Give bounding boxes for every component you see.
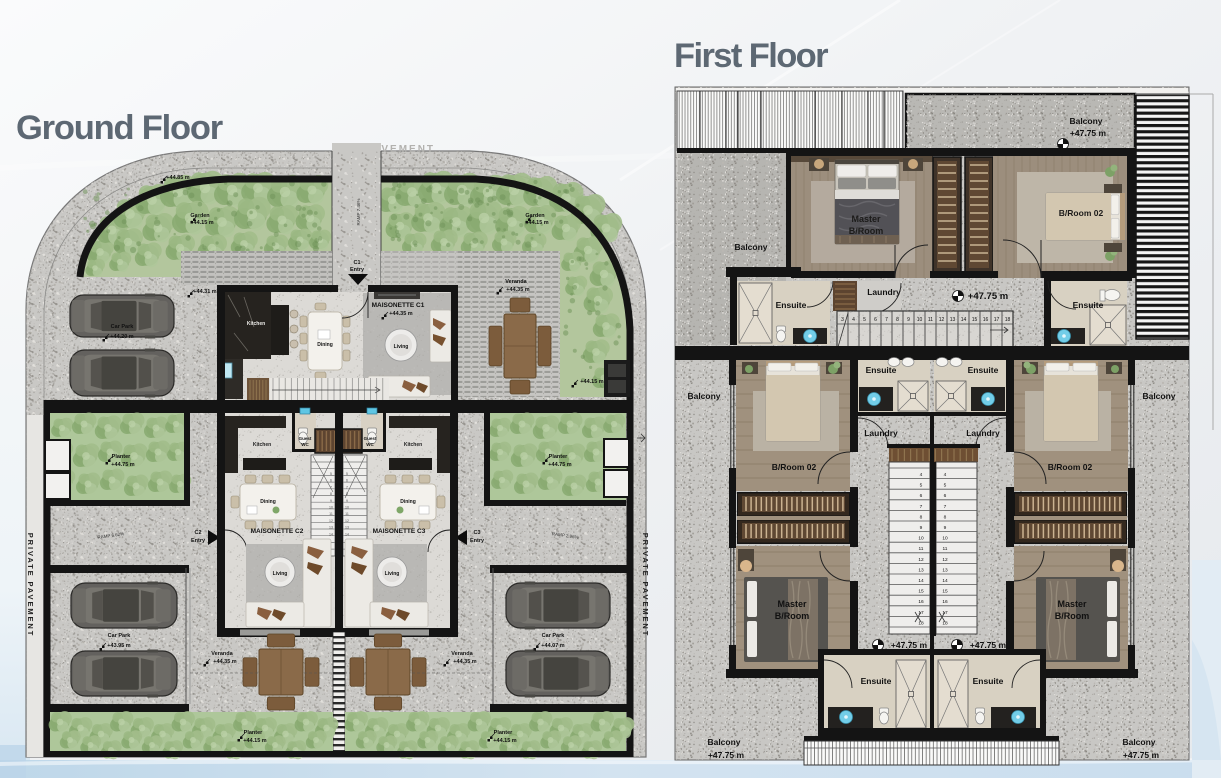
svg-text:12: 12 bbox=[939, 317, 945, 323]
svg-text:9: 9 bbox=[330, 499, 332, 503]
svg-text:16: 16 bbox=[983, 317, 989, 323]
svg-text:10: 10 bbox=[917, 317, 923, 323]
svg-text:7: 7 bbox=[346, 485, 348, 489]
svg-text:C2: C2 bbox=[194, 530, 201, 536]
svg-text:Veranda: Veranda bbox=[451, 651, 473, 657]
svg-text:12: 12 bbox=[918, 557, 924, 563]
svg-text:6: 6 bbox=[920, 493, 923, 499]
svg-text:Balcony: Balcony bbox=[1142, 391, 1175, 401]
svg-text:+44.15 m: +44.15 m bbox=[525, 220, 549, 226]
svg-text:7: 7 bbox=[944, 504, 947, 510]
svg-text:12: 12 bbox=[329, 519, 333, 523]
svg-text:Garden: Garden bbox=[525, 213, 545, 219]
svg-text:Kitchen: Kitchen bbox=[253, 442, 271, 448]
svg-text:6: 6 bbox=[346, 479, 348, 483]
svg-text:15: 15 bbox=[918, 589, 924, 595]
svg-text:14: 14 bbox=[961, 317, 967, 323]
svg-text:Entry: Entry bbox=[191, 538, 206, 544]
svg-text:B/Room 02: B/Room 02 bbox=[772, 462, 817, 472]
svg-text:Balcony: Balcony bbox=[1069, 116, 1102, 126]
svg-text:MAISONETTE C1: MAISONETTE C1 bbox=[372, 302, 425, 309]
svg-text:8: 8 bbox=[944, 514, 947, 520]
svg-text:+47.75 m: +47.75 m bbox=[968, 291, 1008, 302]
svg-text:Laundry: Laundry bbox=[966, 428, 1000, 438]
svg-text:Planter: Planter bbox=[494, 730, 514, 736]
svg-text:9: 9 bbox=[907, 317, 910, 323]
svg-text:+43.95 m: +43.95 m bbox=[107, 643, 131, 649]
svg-text:Dining: Dining bbox=[400, 499, 416, 505]
svg-text:Master: Master bbox=[1057, 599, 1087, 609]
svg-text:WC: WC bbox=[301, 442, 309, 447]
svg-text:4: 4 bbox=[920, 472, 923, 478]
svg-text:C3: C3 bbox=[473, 530, 480, 536]
svg-text:5: 5 bbox=[920, 483, 923, 489]
svg-text:Balcony: Balcony bbox=[687, 391, 720, 401]
svg-text:13: 13 bbox=[942, 567, 948, 573]
svg-text:3: 3 bbox=[841, 317, 844, 323]
svg-text:18: 18 bbox=[942, 620, 948, 626]
svg-text:5: 5 bbox=[346, 472, 348, 476]
svg-text:9: 9 bbox=[920, 525, 923, 531]
svg-text:Master: Master bbox=[777, 599, 807, 609]
svg-text:+47.75 m: +47.75 m bbox=[708, 750, 745, 760]
svg-text:7: 7 bbox=[920, 504, 923, 510]
svg-text:Planter: Planter bbox=[549, 454, 569, 460]
svg-text:+44.75 m: +44.75 m bbox=[548, 462, 572, 468]
svg-text:10: 10 bbox=[345, 506, 349, 510]
svg-text:Balcony: Balcony bbox=[1122, 737, 1155, 747]
svg-text:14: 14 bbox=[345, 532, 349, 536]
svg-text:Car Park: Car Park bbox=[542, 633, 566, 639]
svg-text:9: 9 bbox=[346, 499, 348, 503]
svg-text:Living: Living bbox=[273, 571, 288, 577]
svg-text:MAISONETTE C2: MAISONETTE C2 bbox=[251, 528, 304, 535]
svg-text:+44.15 m: +44.15 m bbox=[580, 379, 604, 385]
svg-text:C1: C1 bbox=[353, 260, 360, 266]
svg-text:9: 9 bbox=[944, 525, 947, 531]
svg-text:+44.15 m: +44.15 m bbox=[243, 738, 267, 744]
svg-text:Living: Living bbox=[394, 344, 409, 350]
svg-text:Dining: Dining bbox=[317, 342, 333, 348]
svg-text:13: 13 bbox=[950, 317, 956, 323]
svg-text:MAISONETTE C3: MAISONETTE C3 bbox=[373, 528, 426, 535]
svg-text:Guest: Guest bbox=[299, 436, 312, 441]
svg-text:17: 17 bbox=[994, 317, 1000, 323]
svg-text:Veranda: Veranda bbox=[505, 279, 527, 285]
svg-text:Ensuite: Ensuite bbox=[866, 365, 897, 375]
svg-text:+44.35 m: +44.35 m bbox=[213, 659, 237, 665]
svg-text:18: 18 bbox=[918, 620, 924, 626]
svg-text:11: 11 bbox=[919, 546, 924, 552]
svg-text:B/Room: B/Room bbox=[775, 611, 810, 621]
svg-text:13: 13 bbox=[329, 526, 333, 530]
svg-text:7: 7 bbox=[885, 317, 888, 323]
svg-text:10: 10 bbox=[942, 536, 948, 542]
svg-text:8: 8 bbox=[330, 492, 332, 496]
svg-text:Entry: Entry bbox=[350, 267, 365, 273]
svg-text:14: 14 bbox=[329, 532, 333, 536]
svg-text:Car Park: Car Park bbox=[108, 633, 132, 639]
svg-text:11: 11 bbox=[345, 512, 349, 516]
svg-text:4: 4 bbox=[944, 472, 947, 478]
svg-text:15: 15 bbox=[942, 589, 948, 595]
svg-text:16: 16 bbox=[918, 599, 924, 605]
svg-text:+44.15 m: +44.15 m bbox=[493, 738, 517, 744]
svg-text:6: 6 bbox=[944, 493, 947, 499]
svg-text:+44.15 m: +44.15 m bbox=[190, 220, 214, 226]
svg-text:Laundry: Laundry bbox=[867, 287, 901, 297]
svg-text:4: 4 bbox=[852, 317, 855, 323]
svg-text:Kitchen: Kitchen bbox=[404, 442, 422, 448]
svg-text:Planter: Planter bbox=[112, 454, 132, 460]
svg-text:Balcony: Balcony bbox=[734, 242, 767, 252]
svg-text:5: 5 bbox=[863, 317, 866, 323]
svg-text:12: 12 bbox=[345, 519, 349, 523]
svg-text:RAMP 7.46%: RAMP 7.46% bbox=[356, 199, 361, 226]
svg-text:14: 14 bbox=[942, 578, 948, 584]
svg-text:Master: Master bbox=[851, 214, 881, 224]
svg-text:Veranda: Veranda bbox=[211, 651, 233, 657]
svg-text:+47.75 m: +47.75 m bbox=[970, 640, 1007, 650]
svg-text:Living: Living bbox=[385, 571, 400, 577]
svg-text:12: 12 bbox=[942, 557, 948, 563]
svg-text:+44.07 m: +44.07 m bbox=[541, 643, 565, 649]
svg-text:8: 8 bbox=[920, 514, 923, 520]
svg-text:Planter: Planter bbox=[244, 730, 264, 736]
svg-text:PRIVATE PAVEMENT: PRIVATE PAVEMENT bbox=[641, 533, 650, 637]
svg-text:Balcony: Balcony bbox=[707, 737, 740, 747]
svg-text:+44.31 m: +44.31 m bbox=[193, 289, 217, 295]
svg-text:Kitchen: Kitchen bbox=[247, 321, 265, 327]
svg-text:10: 10 bbox=[918, 536, 924, 542]
svg-text:14: 14 bbox=[918, 578, 924, 584]
svg-text:Guest: Guest bbox=[364, 436, 377, 441]
svg-text:B/Room 02: B/Room 02 bbox=[1059, 208, 1104, 218]
svg-text:11: 11 bbox=[943, 546, 948, 552]
svg-text:+44.20 m: +44.20 m bbox=[110, 334, 134, 340]
svg-text:Ensuite: Ensuite bbox=[776, 300, 807, 310]
svg-text:+47.75 m: +47.75 m bbox=[1123, 750, 1160, 760]
svg-text:15: 15 bbox=[972, 317, 978, 323]
svg-text:18: 18 bbox=[1005, 317, 1011, 323]
svg-text:Ensuite: Ensuite bbox=[973, 676, 1004, 686]
svg-text:10: 10 bbox=[329, 506, 333, 510]
svg-text:B/Room 02: B/Room 02 bbox=[1048, 462, 1093, 472]
svg-text:+44.35 m: +44.35 m bbox=[506, 287, 530, 293]
svg-text:6: 6 bbox=[874, 317, 877, 323]
svg-text:Ground Floor: Ground Floor bbox=[16, 109, 223, 147]
svg-text:Car Park: Car Park bbox=[111, 324, 135, 330]
svg-text:+47.75 m: +47.75 m bbox=[891, 640, 928, 650]
svg-text:PRIVATE PAVEMENT: PRIVATE PAVEMENT bbox=[26, 533, 35, 637]
svg-text:B/Room: B/Room bbox=[849, 226, 884, 236]
svg-text:WC: WC bbox=[366, 442, 374, 447]
svg-text:B/Room: B/Room bbox=[1055, 611, 1090, 621]
svg-text:8: 8 bbox=[896, 317, 899, 323]
svg-text:+44.35 m: +44.35 m bbox=[389, 311, 413, 317]
svg-text:Ensuite: Ensuite bbox=[1073, 300, 1104, 310]
svg-text:Ensuite: Ensuite bbox=[861, 676, 892, 686]
svg-text:Entry: Entry bbox=[470, 538, 485, 544]
svg-text:16: 16 bbox=[942, 599, 948, 605]
svg-text:7: 7 bbox=[330, 485, 332, 489]
svg-text:First Floor: First Floor bbox=[674, 37, 828, 75]
svg-text:5: 5 bbox=[330, 472, 332, 476]
svg-text:Dining: Dining bbox=[260, 499, 276, 505]
svg-text:+44.75 m: +44.75 m bbox=[111, 462, 135, 468]
svg-text:+47.75 m: +47.75 m bbox=[1070, 128, 1107, 138]
svg-text:11: 11 bbox=[329, 512, 333, 516]
svg-text:11: 11 bbox=[928, 317, 933, 323]
svg-text:13: 13 bbox=[345, 526, 349, 530]
svg-text:5: 5 bbox=[944, 483, 947, 489]
svg-text:6: 6 bbox=[330, 479, 332, 483]
svg-text:13: 13 bbox=[918, 567, 924, 573]
svg-text:8: 8 bbox=[346, 492, 348, 496]
svg-text:+44.35 m: +44.35 m bbox=[453, 659, 477, 665]
svg-text:Ensuite: Ensuite bbox=[968, 365, 999, 375]
